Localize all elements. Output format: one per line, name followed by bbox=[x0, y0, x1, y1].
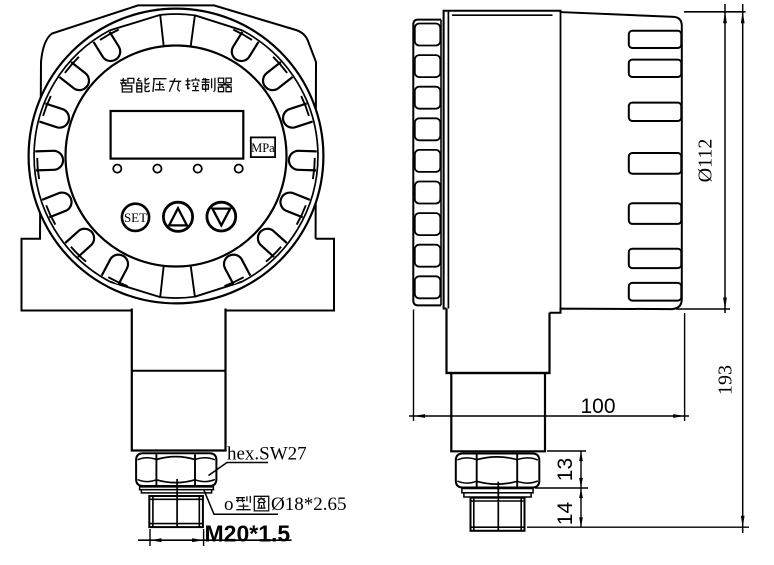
svg-text:Ø18*2.65: Ø18*2.65 bbox=[271, 494, 346, 515]
svg-text:193: 193 bbox=[715, 365, 737, 395]
svg-text:MPa: MPa bbox=[251, 141, 275, 155]
svg-text:o: o bbox=[224, 494, 234, 515]
svg-text:13: 13 bbox=[554, 458, 577, 481]
svg-text:14: 14 bbox=[554, 502, 577, 526]
svg-text:hex.SW27: hex.SW27 bbox=[227, 444, 307, 465]
svg-text:Ø112: Ø112 bbox=[695, 139, 717, 183]
svg-text:SET: SET bbox=[124, 210, 147, 225]
svg-text:M20*1.5: M20*1.5 bbox=[205, 521, 291, 547]
svg-text:100: 100 bbox=[580, 395, 615, 418]
